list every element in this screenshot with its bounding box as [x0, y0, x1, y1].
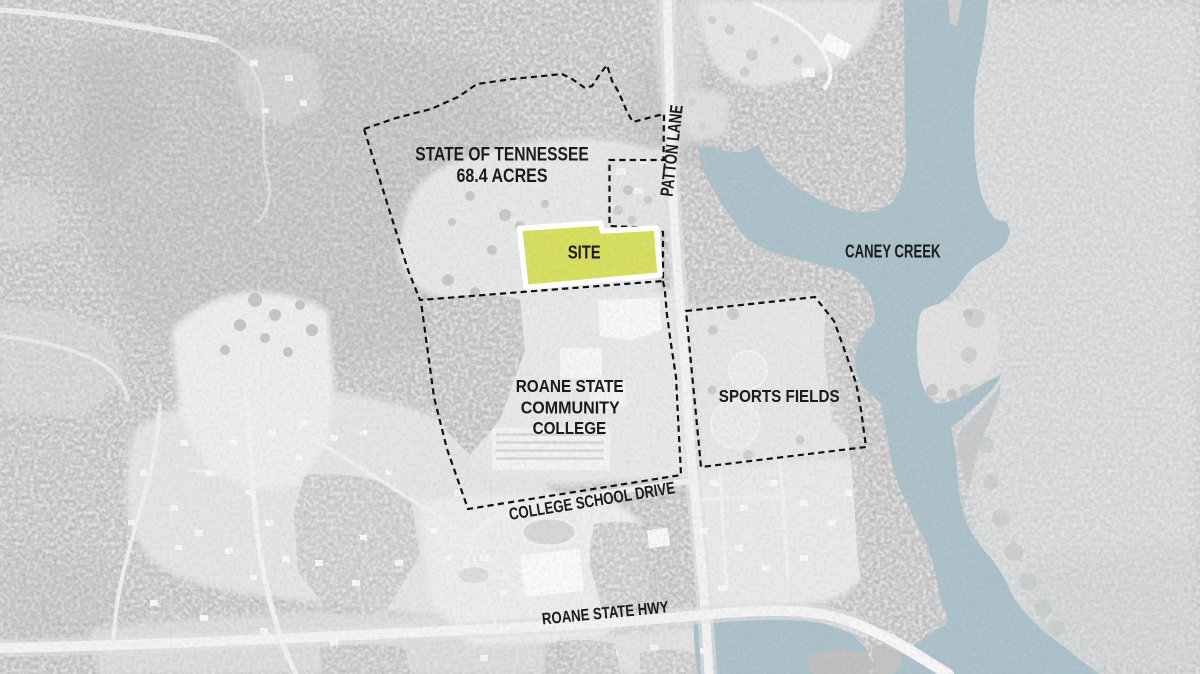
svg-text:STATE OF TENNESSEE: STATE OF TENNESSEE — [415, 145, 589, 166]
svg-text:SPORTS FIELDS: SPORTS FIELDS — [719, 386, 840, 406]
svg-text:SITE: SITE — [568, 243, 601, 263]
svg-text:CANEY CREEK: CANEY CREEK — [845, 242, 940, 262]
svg-text:ROANE STATE: ROANE STATE — [516, 376, 624, 396]
svg-text:COLLEGE: COLLEGE — [533, 418, 607, 438]
svg-text:68.4 ACRES: 68.4 ACRES — [457, 166, 548, 187]
svg-text:COMMUNITY: COMMUNITY — [521, 397, 620, 417]
